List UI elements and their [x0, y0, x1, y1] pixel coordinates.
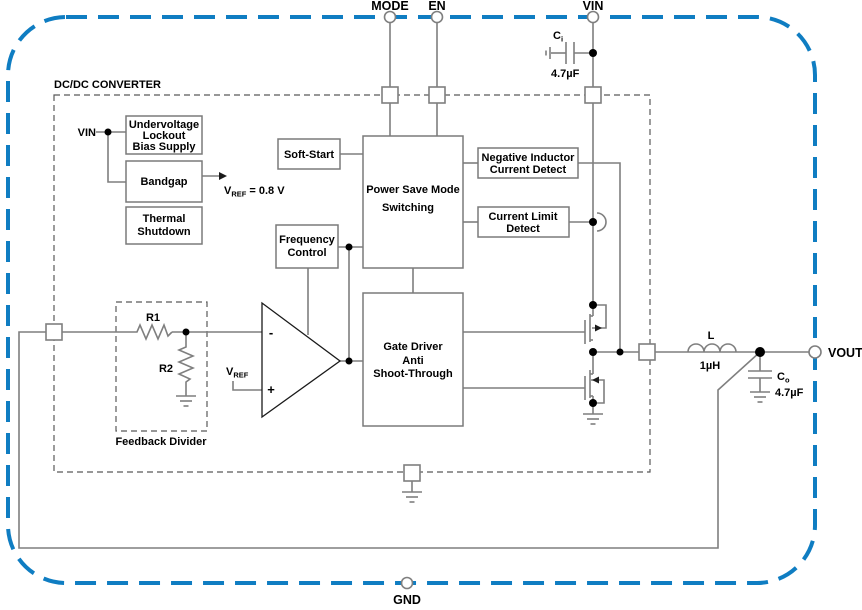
- co-value: 4.7µF: [775, 387, 804, 399]
- vref-value-label: VREF = 0.8 V: [224, 185, 285, 199]
- vin-pin: [588, 12, 599, 23]
- en-pin: [432, 12, 443, 23]
- comparator-minus: -: [269, 325, 273, 340]
- vin-internal-label: VIN: [78, 127, 96, 139]
- svg-text:Current Limit: Current Limit: [488, 211, 557, 223]
- block-soft-start: Soft-Start: [278, 139, 340, 169]
- inductor: [688, 344, 736, 352]
- block-frequency-control: Frequency Control: [276, 225, 338, 268]
- block-uvlo: Undervoltage Lockout Bias Supply: [126, 116, 202, 154]
- svg-text:Shoot-Through: Shoot-Through: [373, 368, 453, 380]
- gnd-pad: [404, 465, 420, 481]
- diagram-canvas: DC/DC CONVERTER Feedback Divider: [0, 0, 862, 610]
- sw-pad: [639, 344, 655, 360]
- svg-text:Thermal: Thermal: [143, 213, 186, 225]
- r2-ground-symbol: [176, 388, 196, 406]
- resistor-r2: [179, 344, 193, 388]
- high-side-fet: [585, 305, 606, 344]
- block-current-limit-detect: Current Limit Detect: [478, 207, 569, 237]
- svg-text:Gate Driver: Gate Driver: [383, 341, 443, 353]
- block-bandgap: Bandgap: [126, 161, 202, 202]
- svg-text:Bandgap: Bandgap: [140, 176, 187, 188]
- vin-pad: [585, 87, 601, 103]
- vin-pin-label: VIN: [583, 0, 604, 13]
- gnd-pin-label: GND: [393, 593, 421, 607]
- en-pad: [429, 87, 445, 103]
- en-pin-label: EN: [428, 0, 445, 13]
- svg-text:Anti: Anti: [402, 355, 423, 367]
- vref-plus-label: VREF: [226, 366, 249, 380]
- fb-pad: [46, 324, 62, 340]
- block-power-save-mode: Power Save Mode Switching: [363, 136, 463, 268]
- low-side-fet-arrow: [592, 377, 599, 384]
- vin-bandgap-wire: [108, 132, 126, 182]
- vout-pin: [809, 346, 821, 358]
- gnd-pad-ground-symbol: [402, 492, 422, 502]
- svg-text:Frequency: Frequency: [279, 234, 336, 246]
- mode-pin-label: MODE: [371, 0, 409, 13]
- mode-pin: [385, 12, 396, 23]
- inductor-label: L: [708, 330, 715, 342]
- current-sense-arc: [597, 213, 606, 231]
- dcdc-converter-block-diagram: DC/DC CONVERTER Feedback Divider: [0, 0, 862, 610]
- svg-text:Soft-Start: Soft-Start: [284, 149, 334, 161]
- ci-label: Ci: [553, 30, 563, 44]
- input-capacitor: [546, 42, 593, 64]
- vref-arrowhead: [219, 172, 227, 180]
- low-side-fet-ground-symbol: [583, 414, 603, 424]
- block-thermal-shutdown: Thermal Shutdown: [126, 207, 202, 244]
- error-comparator: [262, 303, 340, 417]
- svg-text:Control: Control: [287, 247, 326, 259]
- block-negative-inductor-current-detect: Negative Inductor Current Detect: [478, 148, 578, 178]
- vout-pin-label: VOUT: [828, 346, 862, 360]
- resistor-r1: [133, 325, 172, 339]
- mode-pad: [382, 87, 398, 103]
- svg-text:Negative Inductor: Negative Inductor: [482, 152, 576, 164]
- high-side-fet-arrow: [595, 325, 602, 332]
- ci-value: 4.7µF: [551, 68, 580, 80]
- block-gate-driver: Gate Driver Anti Shoot-Through: [363, 293, 463, 426]
- feedback-divider-label: Feedback Divider: [115, 436, 207, 448]
- svg-text:Switching: Switching: [382, 202, 434, 214]
- converter-title: DC/DC CONVERTER: [54, 79, 161, 91]
- gnd-pin: [402, 578, 413, 589]
- comparator-plus: +: [267, 382, 275, 397]
- svg-text:Detect: Detect: [506, 223, 540, 235]
- r1-label: R1: [146, 312, 160, 324]
- svg-text:Shutdown: Shutdown: [137, 226, 190, 238]
- r2-label: R2: [159, 363, 173, 375]
- vrefp-wire: [233, 381, 262, 390]
- co-label: Co: [777, 371, 790, 385]
- low-side-fet: [583, 352, 604, 424]
- svg-text:Bias Supply: Bias Supply: [133, 141, 197, 153]
- svg-text:Current Detect: Current Detect: [490, 164, 567, 176]
- inductor-value: 1µH: [700, 360, 720, 372]
- svg-text:Power Save Mode: Power Save Mode: [366, 184, 460, 196]
